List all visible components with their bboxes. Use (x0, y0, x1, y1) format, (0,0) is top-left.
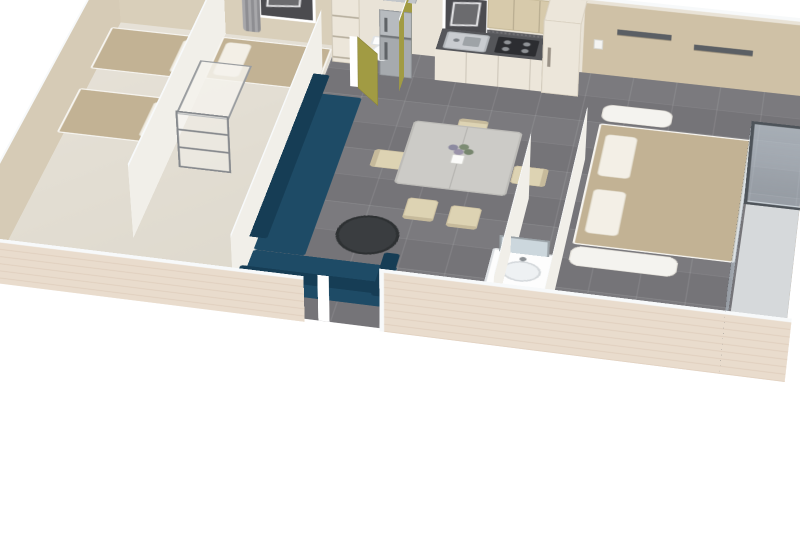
transparent-wardrobe-front (175, 110, 231, 173)
dining-chair-front-center (445, 205, 482, 230)
mobile-home-plan (0, 20, 800, 378)
sink-faucet (453, 38, 460, 42)
master-bed-pillow-2 (584, 189, 627, 237)
sink-basin (462, 36, 481, 47)
front-door-post (317, 275, 330, 322)
fridge-handle-top (384, 18, 387, 32)
kitchen-window-sash (449, 2, 481, 27)
floorplan-3d-render (0, 0, 800, 537)
window-curtain (241, 0, 261, 33)
master-bed-pillow-1 (597, 134, 638, 179)
fridge-front (379, 9, 412, 78)
gas-hob (494, 37, 540, 57)
bedroom2-window-sash (266, 0, 303, 7)
master-double-bed (572, 123, 752, 263)
kitchen-sink (442, 31, 490, 52)
flower-vase (450, 154, 466, 164)
dining-chair-front-left (402, 197, 439, 222)
glass-wardrobe-return-panel (744, 121, 800, 211)
tall-cabinet-front (541, 19, 582, 96)
perspective-scene (0, 0, 800, 537)
dining-table (394, 120, 523, 196)
tall-cabinet-handle (547, 47, 551, 67)
fridge-handle-bottom (384, 42, 387, 60)
light-switch (593, 39, 603, 50)
